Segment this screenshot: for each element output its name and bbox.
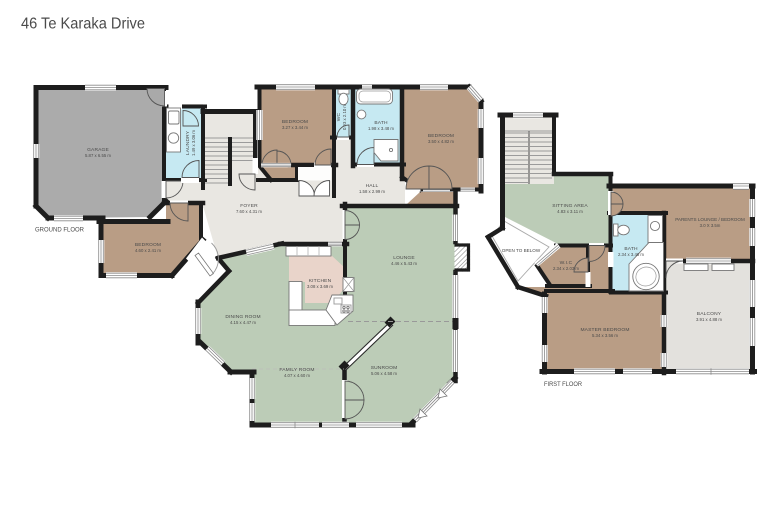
svg-text:3.27 x 3.44 m: 3.27 x 3.44 m — [282, 125, 308, 130]
svg-text:2.34 x 2.03 m: 2.34 x 2.03 m — [553, 266, 579, 271]
svg-text:46 Te Karaka Drive: 46 Te Karaka Drive — [21, 16, 145, 33]
svg-text:1.49 x 3.06 m: 1.49 x 3.06 m — [191, 130, 196, 156]
svg-text:GROUND FLOOR: GROUND FLOOR — [35, 227, 84, 234]
svg-text:2.34 x 3.46 m: 2.34 x 3.46 m — [618, 252, 644, 257]
svg-text:7.60 x 4.31 m: 7.60 x 4.31 m — [236, 209, 262, 214]
svg-text:4.60 x 2.41 m: 4.60 x 2.41 m — [135, 248, 161, 253]
svg-text:5.34 x 3.56 m: 5.34 x 3.56 m — [592, 333, 618, 338]
svg-text:4.46 x 5.43 m: 4.46 x 5.43 m — [391, 261, 417, 266]
svg-text:5.87 x 6.55 m: 5.87 x 6.55 m — [85, 153, 111, 158]
svg-text:3.91 x 4.88 m: 3.91 x 4.88 m — [696, 317, 722, 322]
svg-text:3.50 x 4.82 m: 3.50 x 4.82 m — [428, 139, 454, 144]
svg-text:OPEN TO BELOW: OPEN TO BELOW — [502, 248, 541, 253]
svg-text:1.98 x 3.48 m: 1.98 x 3.48 m — [368, 126, 394, 131]
svg-text:1.58 x 2.99 m: 1.58 x 2.99 m — [359, 189, 385, 194]
svg-text:0.93 x 2.10 m: 0.93 x 2.10 m — [342, 104, 347, 130]
svg-text:4.15 x 4.47 m: 4.15 x 4.47 m — [230, 320, 256, 325]
svg-text:4.83 x 3.11 m: 4.83 x 3.11 m — [557, 209, 583, 214]
svg-text:FIRST FLOOR: FIRST FLOOR — [544, 381, 582, 388]
svg-text:5.06 x 4.58 m: 5.06 x 4.58 m — [371, 371, 397, 376]
svg-text:3.0 X 3.5m: 3.0 X 3.5m — [700, 223, 721, 228]
svg-text:4.07 x 4.60 m: 4.07 x 4.60 m — [284, 373, 310, 378]
svg-text:PARENTS LOUNGE / BEDROOM: PARENTS LOUNGE / BEDROOM — [675, 217, 745, 222]
svg-text:3.08 x 3.69 m: 3.08 x 3.69 m — [307, 284, 333, 289]
